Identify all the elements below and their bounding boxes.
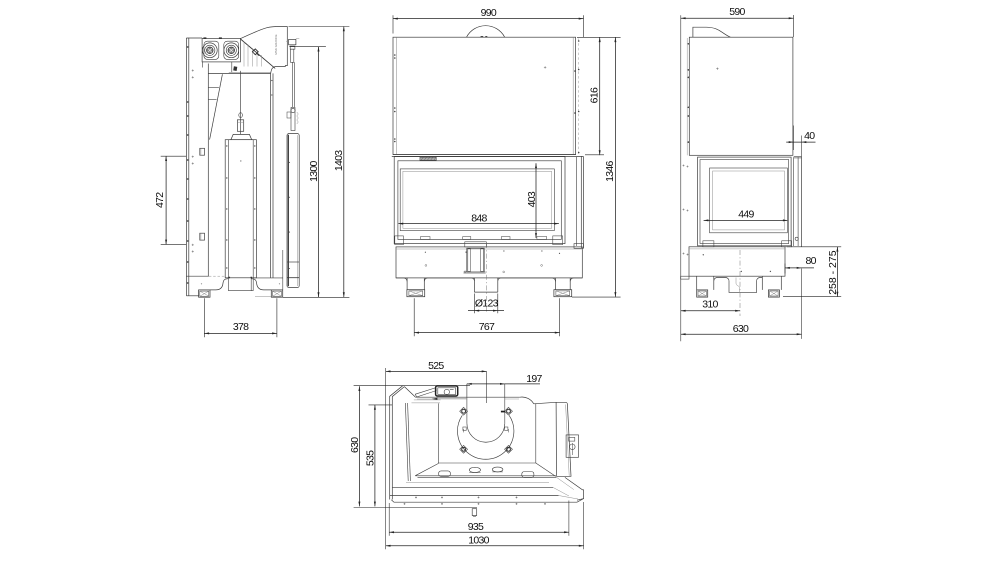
svg-text:1346: 1346 <box>604 160 616 181</box>
svg-text:378: 378 <box>233 321 249 333</box>
svg-text:MSK GRANDE: MSK GRANDE <box>274 34 278 54</box>
svg-text:590: 590 <box>729 6 745 18</box>
svg-text:258 - 275: 258 - 275 <box>827 250 839 295</box>
svg-text:449: 449 <box>738 208 754 220</box>
svg-text:80: 80 <box>806 255 817 267</box>
svg-text:310: 310 <box>702 299 718 311</box>
svg-text:630: 630 <box>733 323 749 335</box>
svg-text:1030: 1030 <box>468 535 489 547</box>
svg-text:935: 935 <box>468 521 484 533</box>
svg-text:616: 616 <box>588 87 600 103</box>
svg-text:197: 197 <box>526 373 542 385</box>
svg-text:767: 767 <box>479 321 495 333</box>
svg-text:Ø123: Ø123 <box>475 297 499 309</box>
svg-text:848: 848 <box>471 212 487 224</box>
svg-text:472: 472 <box>154 192 166 208</box>
svg-text:535: 535 <box>365 450 377 466</box>
svg-text:525: 525 <box>428 360 444 372</box>
svg-text:1300: 1300 <box>308 160 320 181</box>
svg-text:630: 630 <box>349 437 361 453</box>
svg-text:1403: 1403 <box>333 150 345 171</box>
svg-text:40: 40 <box>804 130 815 142</box>
svg-text:403: 403 <box>526 191 538 207</box>
svg-text:990: 990 <box>481 7 497 19</box>
